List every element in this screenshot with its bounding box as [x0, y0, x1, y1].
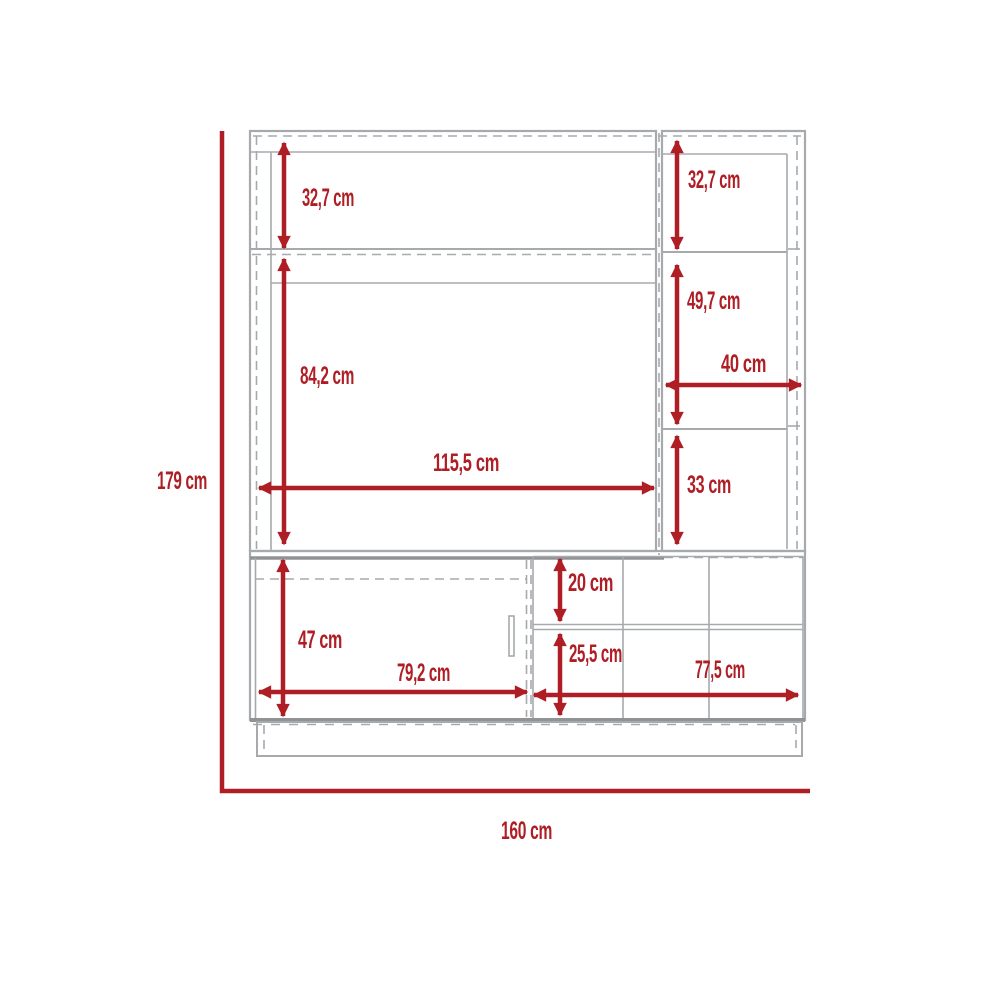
dim-label-total-width: 160 cm [501, 817, 552, 845]
dim-label-right-section-width: 40 cm [721, 350, 766, 378]
dim-label-drawer-section-width: 77,5 cm [695, 656, 745, 684]
dim-label-bottom-drawer-height: 25,5 cm [569, 640, 622, 668]
cabinet-base-plinth [257, 722, 802, 756]
dim-label-upper-right-shelf-height: 32,7 cm [688, 166, 740, 194]
plinth-outline [257, 722, 802, 756]
dim-label-door-height: 47 cm [298, 626, 342, 654]
diagram-canvas: 32,7 cm 32,7 cm 49,7 cm 40 cm 84,2 cm 11… [0, 0, 1000, 1000]
cabinet-upper-right-section [662, 131, 805, 558]
upper-right-outline [662, 131, 805, 551]
dim-label-right-middle-shelf-height: 49,7 cm [687, 287, 740, 315]
dim-label-tv-opening-width: 115,5 cm [433, 449, 499, 477]
furniture-dimension-diagram: 32,7 cm 32,7 cm 49,7 cm 40 cm 84,2 cm 11… [0, 0, 1000, 1000]
dim-label-total-height: 179 cm [157, 467, 207, 495]
dim-label-door-width: 79,2 cm [397, 659, 450, 687]
door-handle [509, 616, 514, 656]
dim-label-top-drawer-height: 20 cm [568, 569, 613, 597]
dim-label-upper-left-shelf-height: 32,7 cm [302, 184, 354, 212]
dimension-annotations: 32,7 cm 32,7 cm 49,7 cm 40 cm 84,2 cm 11… [157, 131, 810, 845]
dim-label-right-lower-shelf-height: 33 cm [687, 471, 731, 499]
dim-label-tv-opening-height: 84,2 cm [300, 362, 354, 390]
